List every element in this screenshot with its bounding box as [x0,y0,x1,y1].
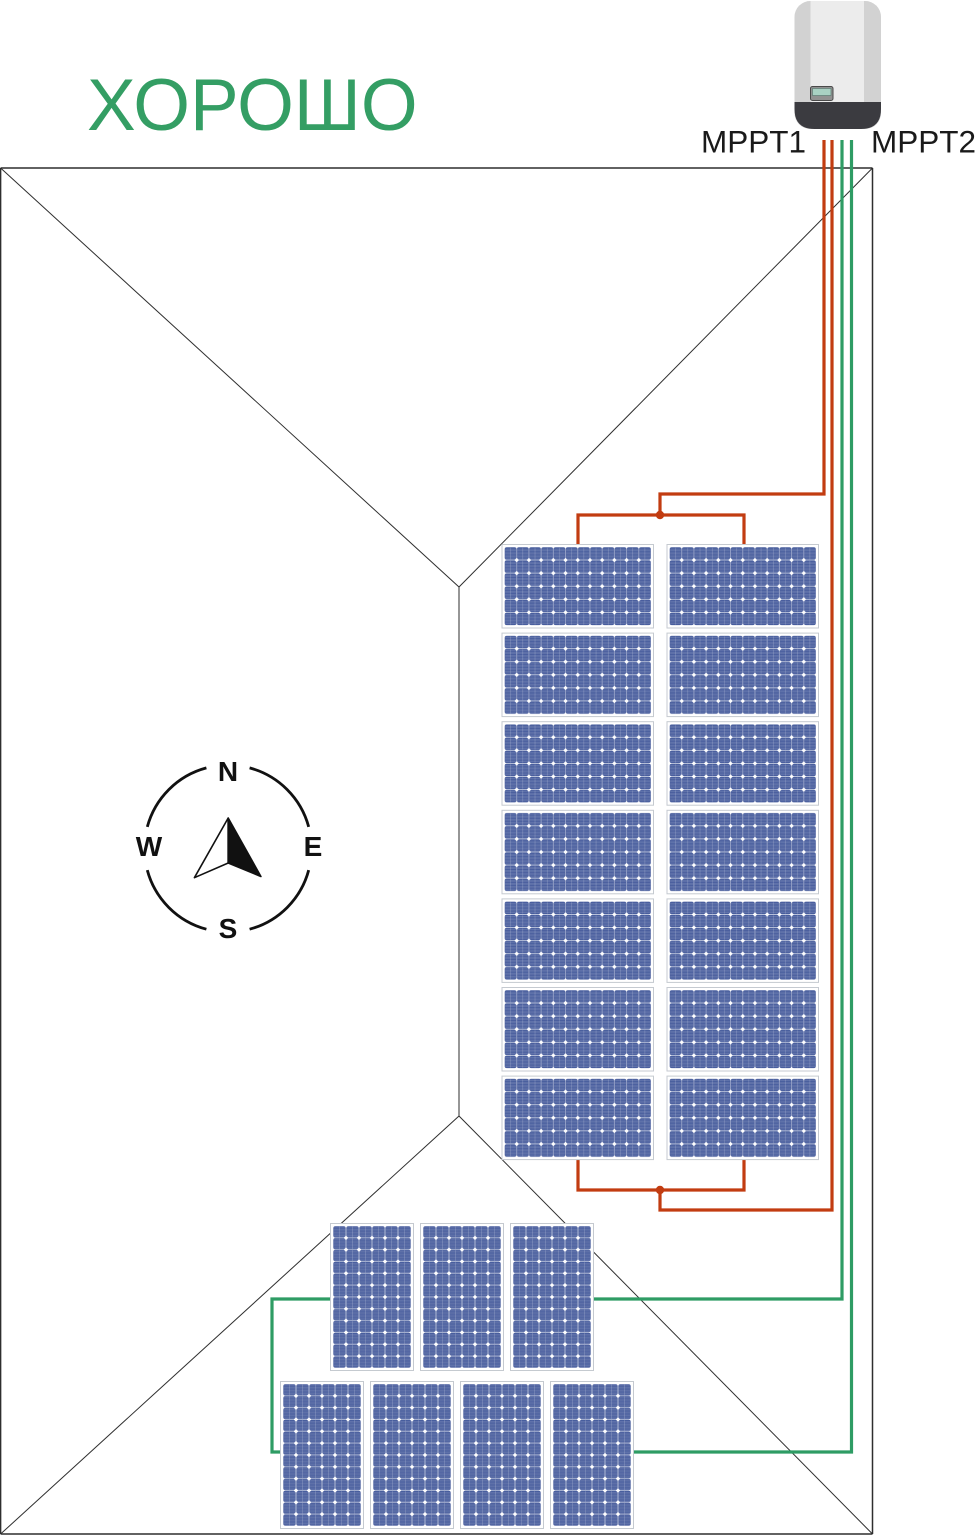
svg-text:E: E [304,831,323,862]
svg-text:W: W [136,831,163,862]
svg-text:MPPT1: MPPT1 [701,124,806,160]
svg-text:N: N [218,756,238,787]
svg-text:MPPT2: MPPT2 [871,124,976,160]
svg-text:ХОРОШО: ХОРОШО [87,65,418,146]
svg-text:S: S [219,913,238,944]
